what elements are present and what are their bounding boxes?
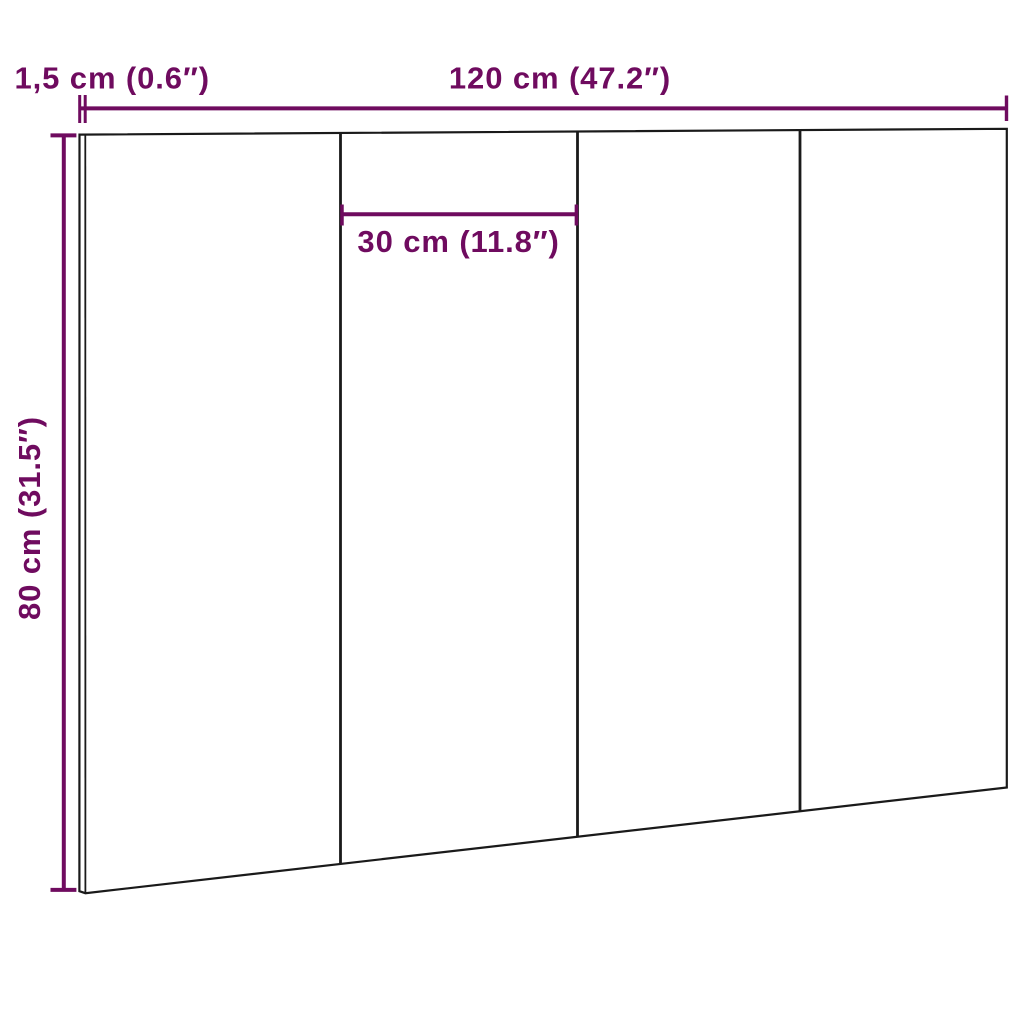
svg-text:120 cm (47.2″): 120 cm (47.2″)	[449, 61, 671, 96]
svg-text:80 cm (31.5″): 80 cm (31.5″)	[12, 416, 47, 620]
svg-text:1,5 cm (0.6″): 1,5 cm (0.6″)	[15, 61, 210, 96]
svg-text:30 cm (11.8″): 30 cm (11.8″)	[357, 224, 559, 259]
